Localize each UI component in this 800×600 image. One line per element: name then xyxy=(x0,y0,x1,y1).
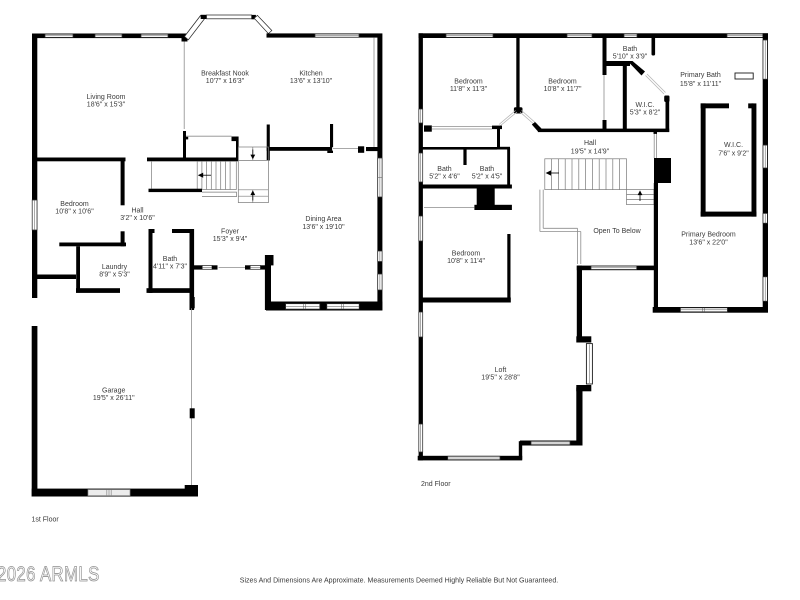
svg-text:15'3" x 9'4": 15'3" x 9'4" xyxy=(213,236,248,243)
svg-text:Dining Area: Dining Area xyxy=(305,216,341,223)
svg-text:Living Room: Living Room xyxy=(87,94,126,101)
svg-text:8'9" x 5'3": 8'9" x 5'3" xyxy=(99,272,130,279)
svg-text:Hall: Hall xyxy=(584,140,597,147)
svg-text:13'6" x 13'10": 13'6" x 13'10" xyxy=(290,78,333,85)
svg-text:Garage: Garage xyxy=(102,388,125,395)
svg-text:Foyer: Foyer xyxy=(221,229,240,236)
svg-text:5'10" x 3'9": 5'10" x 3'9" xyxy=(613,54,648,61)
svg-text:5'2" x 4'5": 5'2" x 4'5" xyxy=(472,174,503,181)
svg-text:15'8" x 11'11": 15'8" x 11'11" xyxy=(680,81,722,88)
svg-text:2026 ARMLS: 2026 ARMLS xyxy=(0,563,100,586)
svg-text:10'8" x 10'6": 10'8" x 10'6" xyxy=(55,209,94,216)
svg-text:5'3" x 8'2": 5'3" x 8'2" xyxy=(630,110,661,117)
svg-text:Bath: Bath xyxy=(623,46,638,53)
svg-text:Primary Bath: Primary Bath xyxy=(680,72,721,79)
svg-text:18'6" x 15'3": 18'6" x 15'3" xyxy=(87,102,126,109)
svg-text:19'5" x 14'9": 19'5" x 14'9" xyxy=(571,149,610,156)
svg-text:3'2" x 10'6": 3'2" x 10'6" xyxy=(120,215,155,222)
svg-text:Bedroom: Bedroom xyxy=(454,79,483,86)
svg-text:4'11" x 7'3": 4'11" x 7'3" xyxy=(153,264,187,271)
svg-text:Bedroom: Bedroom xyxy=(452,251,481,258)
svg-text:Sizes And Dimensions Are Appro: Sizes And Dimensions Are Approximate. Me… xyxy=(240,578,558,585)
svg-text:1st Floor: 1st Floor xyxy=(32,517,60,524)
svg-text:Breakfast Nook: Breakfast Nook xyxy=(201,71,249,78)
svg-text:Primary Bedroom: Primary Bedroom xyxy=(681,232,736,239)
svg-text:Bedroom: Bedroom xyxy=(60,201,89,208)
svg-text:Bath: Bath xyxy=(437,166,452,173)
svg-text:Loft: Loft xyxy=(495,367,507,374)
svg-text:13'6" x 22'0": 13'6" x 22'0" xyxy=(689,240,728,247)
svg-text:19'5" x 26'11": 19'5" x 26'11" xyxy=(93,395,135,402)
svg-text:13'6" x 19'10": 13'6" x 19'10" xyxy=(302,224,345,231)
svg-text:5'2" x 4'6": 5'2" x 4'6" xyxy=(429,174,460,181)
svg-text:Bedroom: Bedroom xyxy=(548,79,577,86)
svg-text:10'7" x 16'3": 10'7" x 16'3" xyxy=(206,78,245,85)
svg-text:Kitchen: Kitchen xyxy=(299,71,322,78)
svg-text:19'5" x 28'8": 19'5" x 28'8" xyxy=(481,375,520,382)
svg-text:Bath: Bath xyxy=(480,166,495,173)
svg-text:10'8" x 11'7": 10'8" x 11'7" xyxy=(544,86,582,93)
svg-text:10'8" x 11'4": 10'8" x 11'4" xyxy=(447,258,485,265)
svg-text:Bath: Bath xyxy=(163,256,178,263)
svg-text:11'8" x 11'3": 11'8" x 11'3" xyxy=(450,86,488,93)
svg-text:Hall: Hall xyxy=(131,208,144,215)
svg-text:7'6" x 9'2": 7'6" x 9'2" xyxy=(718,151,749,158)
svg-text:W.I.C.: W.I.C. xyxy=(635,102,654,109)
svg-text:2nd Floor: 2nd Floor xyxy=(421,481,451,488)
svg-text:Laundry: Laundry xyxy=(102,264,128,271)
svg-text:Open To Below: Open To Below xyxy=(593,228,641,235)
svg-text:W.I.C.: W.I.C. xyxy=(724,142,743,149)
